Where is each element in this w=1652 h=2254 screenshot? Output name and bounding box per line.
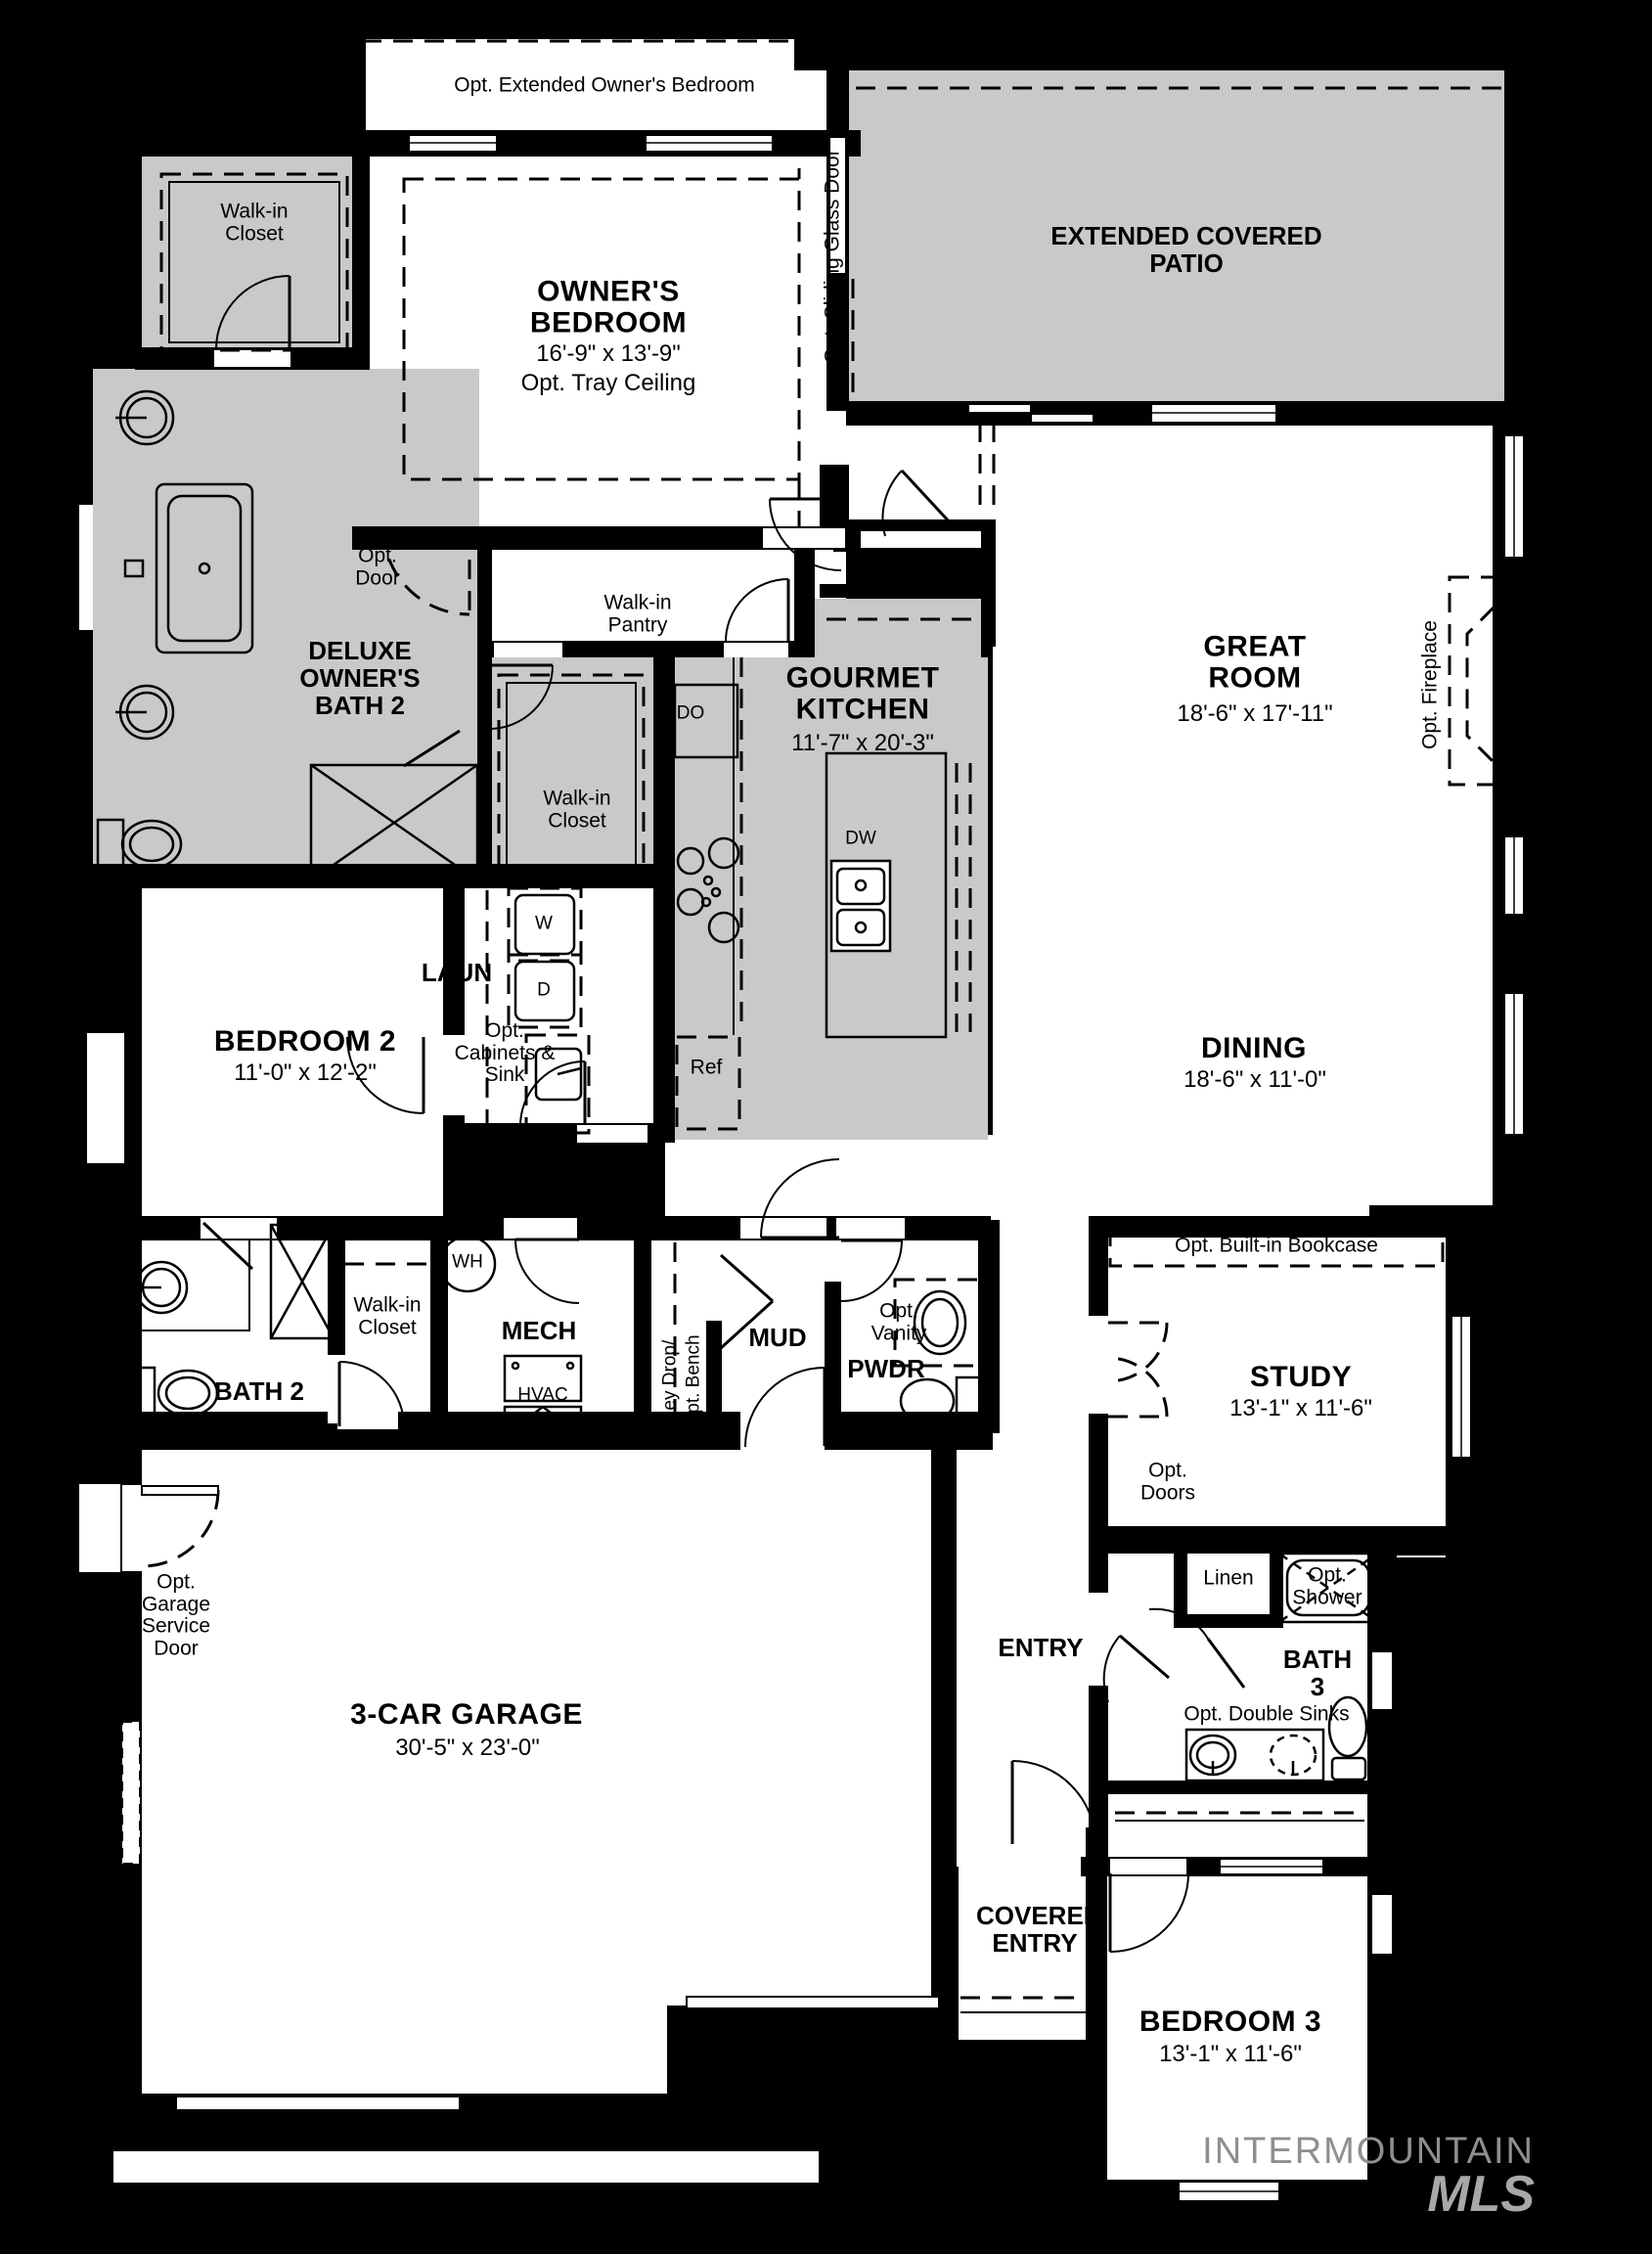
- label-owners-bedroom-dims: 16'-9" x 13'-9": [462, 341, 755, 367]
- label-bedroom-3-dims: 13'-1" x 11'-6": [1084, 2042, 1377, 2067]
- label-opt-sliding-glass-door: Opt. Sliding Glass Door: [823, 134, 845, 379]
- label-bath-3: BATH 3: [1273, 1645, 1362, 1700]
- label-garage-dims: 30'-5" x 23'-0": [321, 1736, 614, 1761]
- label-owners-bedroom: OWNER'S BEDROOM: [462, 277, 755, 340]
- label-hvac: HVAC: [517, 1386, 567, 1407]
- label-owners-bedroom-note: Opt. Tray Ceiling: [462, 371, 755, 396]
- label-gourmet-kitchen: GOURMET KITCHEN: [740, 663, 985, 727]
- label-bedroom-2-dims: 11'-0" x 12'-2": [158, 1060, 452, 1086]
- label-great-room: GREAT ROOM: [1157, 632, 1353, 696]
- label-study: STUDY: [1250, 1362, 1352, 1393]
- label-opt-shower: Opt. Shower: [1283, 1564, 1371, 1608]
- label-extended-covered-patio: EXTENDED COVERED PATIO: [1049, 222, 1323, 277]
- label-bedroom-3: BEDROOM 3: [1084, 2006, 1377, 2038]
- label-pwdr: PWDR: [847, 1355, 924, 1382]
- label-study-dims: 13'-1" x 11'-6": [1179, 1396, 1423, 1421]
- label-dining: DINING: [1201, 1033, 1307, 1064]
- label-water-heater: WH: [452, 1253, 483, 1274]
- label-great-room-dims: 18'-6" x 17'-11": [1133, 701, 1377, 727]
- label-opt-doors: Opt. Doors: [1129, 1460, 1207, 1504]
- label-mud: MUD: [748, 1324, 806, 1351]
- label-gourmet-kitchen-dims: 11'-7" x 20'-3": [740, 731, 985, 756]
- watermark-line2: MLS: [1202, 2165, 1535, 2224]
- label-garage: 3-CAR GARAGE: [271, 1699, 662, 1731]
- label-bedroom-2: BEDROOM 2: [158, 1026, 452, 1058]
- label-opt-bench: Opt. Bench: [685, 1308, 705, 1455]
- label-walk-in-closet-owner: Walk-in Closet: [201, 201, 308, 245]
- label-opt-double-sinks: Opt. Double Sinks: [1130, 1704, 1404, 1727]
- floor-plan-page: Opt. Extended Owner's Bedroom Walk-in Cl…: [0, 0, 1652, 2254]
- label-covered-entry: COVERED ENTRY: [976, 1902, 1094, 1957]
- label-opt-fireplace: Opt. Fireplace: [1420, 597, 1443, 773]
- label-walk-in-closet-3: Walk-in Closet: [343, 1294, 431, 1338]
- label-walk-in-pantry: Walk-in Pantry: [579, 592, 696, 636]
- label-opt-extended-owners-bedroom: Opt. Extended Owner's Bedroom: [399, 75, 810, 98]
- label-dishwasher: DW: [845, 830, 876, 850]
- label-deluxe-owners-bath: DELUXE OWNER'S BATH 2: [282, 637, 438, 719]
- label-linen-bath3: Linen: [1180, 1568, 1277, 1591]
- label-bath-2: BATH 2: [210, 1377, 308, 1405]
- label-opt-garage-service-door: Opt. Garage Service Door: [127, 1572, 225, 1661]
- label-opt-vanity: Opt. Vanity: [855, 1300, 943, 1344]
- label-opt-door: Opt. Door: [338, 545, 417, 589]
- label-double-oven: DO: [677, 704, 705, 725]
- label-refrigerator: Ref: [691, 1058, 723, 1080]
- label-walk-in-closet-2: Walk-in Closet: [523, 788, 631, 832]
- label-key-drop: Key Drop/: [661, 1308, 682, 1455]
- label-opt-cabinets-sink: Opt. Cabinets & Sink: [446, 1020, 563, 1087]
- label-mech: MECH: [502, 1317, 577, 1344]
- label-dining-dims: 18'-6" x 11'-0": [1133, 1067, 1377, 1093]
- label-laundry: LAUN: [422, 959, 492, 986]
- label-dryer: D: [537, 981, 551, 1002]
- label-washer: W: [535, 915, 553, 935]
- label-opt-builtin-bookcase: Opt. Built-in Bookcase: [1130, 1236, 1423, 1258]
- watermark: INTERMOUNTAIN MLS: [1202, 2131, 1535, 2224]
- label-entry: ENTRY: [998, 1634, 1083, 1661]
- label-linen-hall: Linen: [854, 557, 961, 579]
